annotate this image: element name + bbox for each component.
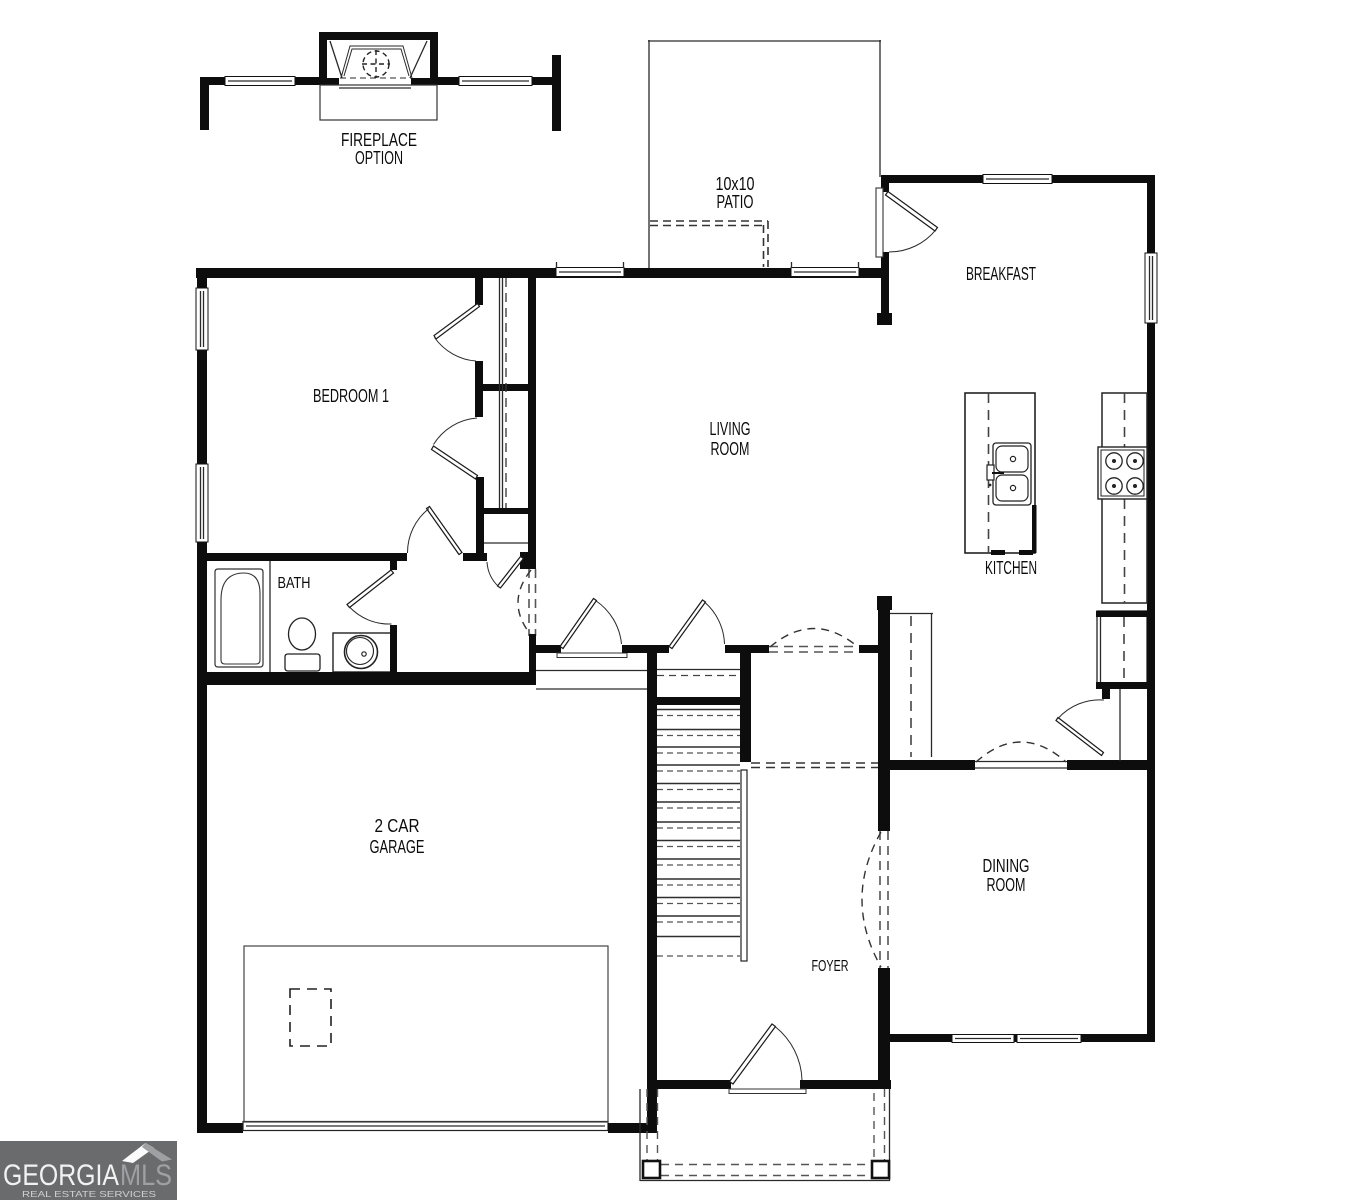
svg-text:GEORGIA: GEORGIA [3, 1159, 119, 1192]
svg-text:ROOM: ROOM [711, 439, 750, 459]
svg-text:OPTION: OPTION [355, 148, 403, 168]
svg-text:DINING: DINING [983, 856, 1030, 876]
svg-text:ROOM: ROOM [987, 875, 1026, 895]
svg-text:MLS: MLS [120, 1159, 172, 1192]
svg-text:REAL ESTATE SERVICES: REAL ESTATE SERVICES [22, 1189, 156, 1199]
svg-text:PATIO: PATIO [717, 192, 754, 212]
svg-text:2 CAR: 2 CAR [375, 816, 420, 836]
svg-text:BEDROOM 1: BEDROOM 1 [313, 386, 389, 406]
svg-text:BATH: BATH [278, 575, 311, 592]
svg-text:FIREPLACE: FIREPLACE [341, 130, 417, 150]
svg-text:10x10: 10x10 [716, 174, 755, 194]
svg-text:LIVING: LIVING [710, 419, 751, 439]
svg-text:FOYER: FOYER [812, 958, 849, 975]
svg-text:GARAGE: GARAGE [370, 837, 425, 857]
svg-text:BREAKFAST: BREAKFAST [966, 264, 1036, 284]
svg-text:KITCHEN: KITCHEN [985, 558, 1037, 578]
